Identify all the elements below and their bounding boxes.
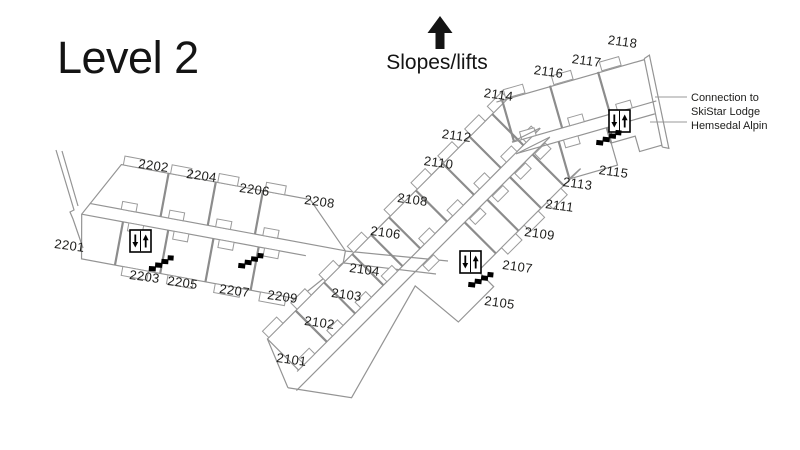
room-label-2118: 2118 <box>607 32 638 51</box>
room-label-2111: 2111 <box>544 196 574 215</box>
elevator-icon <box>130 230 151 252</box>
room-label-2112: 2112 <box>441 126 472 145</box>
elevator-icon <box>609 110 630 132</box>
room-label-2110: 2110 <box>423 153 454 172</box>
room-label-2117: 2117 <box>571 51 602 70</box>
room-label-2101: 2101 <box>275 350 307 369</box>
room-label-2103: 2103 <box>330 285 362 304</box>
room-label-2204: 2204 <box>185 166 217 185</box>
room-label-2208: 2208 <box>303 192 335 211</box>
room-label-2116: 2116 <box>533 62 564 81</box>
connection-label-line3: Hemsedal Alpin <box>691 120 767 132</box>
room-label-2201: 2201 <box>53 236 85 255</box>
room-label-2202: 2202 <box>137 156 169 175</box>
room-label-2115: 2115 <box>598 162 629 181</box>
floor-plan-page: Level 2 Slopes/lifts Connection to SkiSt… <box>0 0 800 450</box>
slopes-lifts-label: Slopes/lifts <box>386 51 488 74</box>
page-title: Level 2 <box>57 32 199 83</box>
room-label-2114: 2114 <box>483 85 514 104</box>
room-label-2105: 2105 <box>483 293 515 312</box>
slopes-lifts-marker: Slopes/lifts <box>386 16 488 74</box>
stairs-icon <box>238 251 264 270</box>
room-label-2206: 2206 <box>238 180 270 199</box>
connection-label-line1: Connection to <box>691 92 759 104</box>
room-label-2102: 2102 <box>303 313 335 332</box>
room-label-2113: 2113 <box>562 174 593 193</box>
connection-label-line2: SkiStar Lodge <box>691 106 760 118</box>
up-arrow-icon <box>428 16 453 49</box>
room-label-2107: 2107 <box>501 257 533 276</box>
room-label-2203: 2203 <box>128 267 160 286</box>
room-label-2109: 2109 <box>523 224 555 243</box>
floor-plan-svg: Level 2 Slopes/lifts Connection to SkiSt… <box>0 0 800 450</box>
room-label-2205: 2205 <box>166 273 198 292</box>
room-label-2104: 2104 <box>348 260 380 279</box>
room-label-2207: 2207 <box>218 281 250 300</box>
connection-note: Connection to SkiStar Lodge Hemsedal Alp… <box>650 92 767 132</box>
room-label-2108: 2108 <box>396 190 428 209</box>
right-wing-lower-outline <box>247 91 596 440</box>
elevator-icon <box>460 251 481 273</box>
west-edge-wall <box>56 150 83 248</box>
